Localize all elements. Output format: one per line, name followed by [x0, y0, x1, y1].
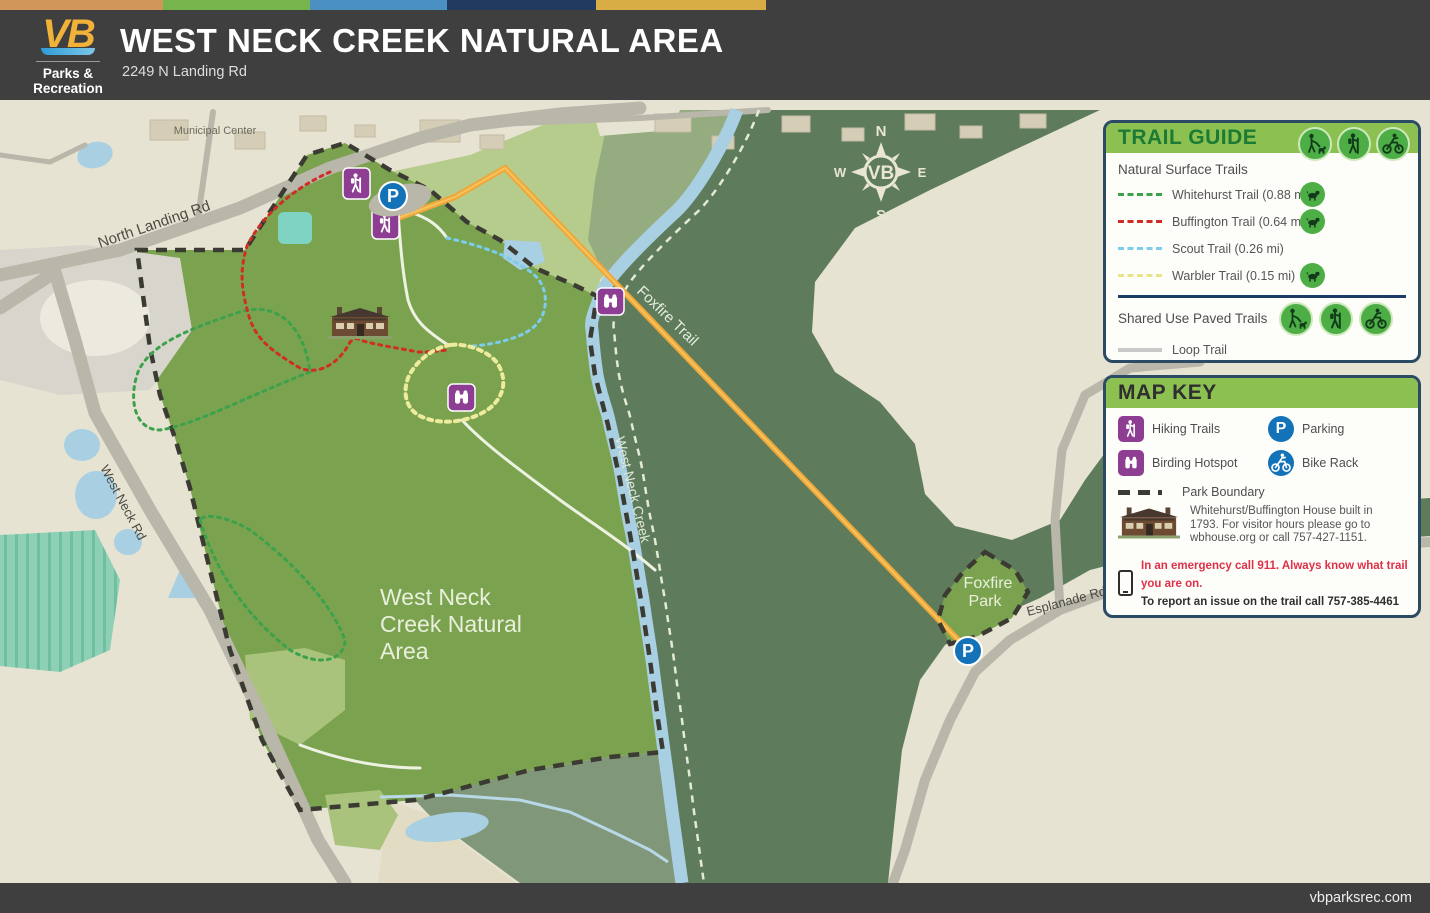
svg-text:P: P	[387, 186, 399, 206]
teal-pond	[278, 212, 312, 244]
warbler-swatch	[1118, 274, 1162, 277]
svg-text:Area: Area	[380, 638, 429, 664]
vb-parks-logo: VB Parks & Recreation	[22, 14, 114, 96]
logo-org-line2: Recreation	[22, 81, 114, 96]
biking-icon	[1376, 127, 1410, 161]
trail-row-buffington: Buffington Trail (0.64 mi)	[1118, 208, 1408, 235]
whitehurst-house-icon	[1118, 505, 1180, 539]
paved-trails-heading: Shared Use Paved Trails	[1118, 311, 1267, 326]
dog-friendly-icon	[1300, 209, 1325, 234]
map-key-panel: MAP KEY Hiking Trails P Parking Birding …	[1103, 375, 1421, 618]
trail-row-warbler: Warbler Trail (0.15 mi)	[1118, 262, 1408, 289]
dog-friendly-icon	[1300, 263, 1325, 288]
house-note-row: Whitehurst/Buffington House built in 179…	[1118, 505, 1408, 546]
hiking-trails-icon	[1118, 416, 1144, 442]
logo-org-line1: Parks &	[22, 66, 114, 81]
emergency-black-text: To report an issue on the trail call 757…	[1141, 596, 1399, 608]
birding-hotspot-icon	[448, 384, 475, 411]
page-subtitle: 2249 N Landing Rd	[122, 64, 247, 80]
paved-activity-badges	[1279, 302, 1393, 336]
trail-row-loop: Loop Trail	[1118, 336, 1408, 363]
teal-fields	[0, 530, 120, 672]
scout-swatch	[1118, 247, 1162, 250]
biking-icon	[1359, 302, 1393, 336]
dog-walking-icon	[1279, 302, 1313, 336]
hiking-icon	[1319, 302, 1353, 336]
natural-trails-heading: Natural Surface Trails	[1118, 162, 1408, 177]
svg-text:Creek Natural: Creek Natural	[380, 611, 522, 637]
svg-text:Foxfire: Foxfire	[964, 575, 1013, 592]
svg-text:N: N	[876, 123, 887, 140]
svg-text:West Neck: West Neck	[380, 584, 491, 610]
trail-activity-badges	[1298, 127, 1410, 161]
park-boundary-swatch	[1118, 490, 1162, 495]
svg-text:P: P	[962, 641, 974, 661]
key-item-park-boundary: Park Boundary	[1118, 485, 1408, 499]
svg-text:E: E	[918, 165, 927, 180]
trail-row-scout: Scout Trail (0.26 mi)	[1118, 235, 1408, 262]
trail-row-whitehurst: Whitehurst Trail (0.88 mi)	[1118, 181, 1408, 208]
svg-text:W: W	[834, 165, 847, 180]
key-item-hiking-trails: Hiking Trails	[1118, 416, 1268, 442]
trail-guide-title: TRAIL GUIDE	[1118, 126, 1257, 150]
trail-guide-divider	[1118, 295, 1406, 298]
map-key-title: MAP KEY	[1118, 381, 1217, 405]
dog-walking-icon	[1298, 127, 1332, 161]
parking-icon: P	[1268, 416, 1294, 442]
svg-text:S: S	[876, 207, 886, 224]
birding-hotspot-icon	[597, 288, 624, 315]
header-color-stripe	[0, 0, 1430, 10]
loop-swatch	[1118, 348, 1162, 352]
key-item-parking: P Parking	[1268, 416, 1408, 442]
header-bar: VB Parks & Recreation WEST NECK CREEK NA…	[0, 0, 1430, 100]
key-item-bike-rack: Bike Rack	[1268, 450, 1408, 476]
website-link[interactable]: vbparksrec.com	[1310, 890, 1412, 906]
parking-icon: P	[379, 182, 407, 210]
bike-rack-icon	[1268, 450, 1294, 476]
emergency-red-text: In an emergency call 911. Always know wh…	[1141, 560, 1408, 590]
house-note-text: Whitehurst/Buffington House built in 179…	[1190, 505, 1398, 546]
hiking-trails-icon	[343, 168, 370, 199]
svg-text:Park: Park	[969, 593, 1003, 610]
trail-guide-panel: TRAIL GUIDE Natural Surface Trails White…	[1103, 120, 1421, 363]
page-title: WEST NECK CREEK NATURAL AREA	[120, 22, 724, 60]
footer-bar: vbparksrec.com	[0, 883, 1430, 913]
svg-text:VB: VB	[868, 163, 894, 184]
dog-friendly-icon	[1300, 182, 1325, 207]
municipal-center-label: Municipal Center	[174, 125, 257, 137]
trail-map-page: P P VB N S E W	[0, 0, 1430, 913]
phone-icon	[1118, 570, 1133, 596]
hiking-icon	[1337, 127, 1371, 161]
emergency-note-row: In an emergency call 911. Always know wh…	[1118, 556, 1408, 610]
whitehurst-swatch	[1118, 193, 1162, 196]
key-item-birding: Birding Hotspot	[1118, 450, 1268, 476]
birding-hotspot-icon	[1118, 450, 1144, 476]
parking-icon: P	[954, 637, 982, 665]
vb-logo-mark: VB	[42, 14, 94, 54]
buffington-swatch	[1118, 220, 1162, 223]
map-key-header: MAP KEY	[1106, 378, 1418, 408]
